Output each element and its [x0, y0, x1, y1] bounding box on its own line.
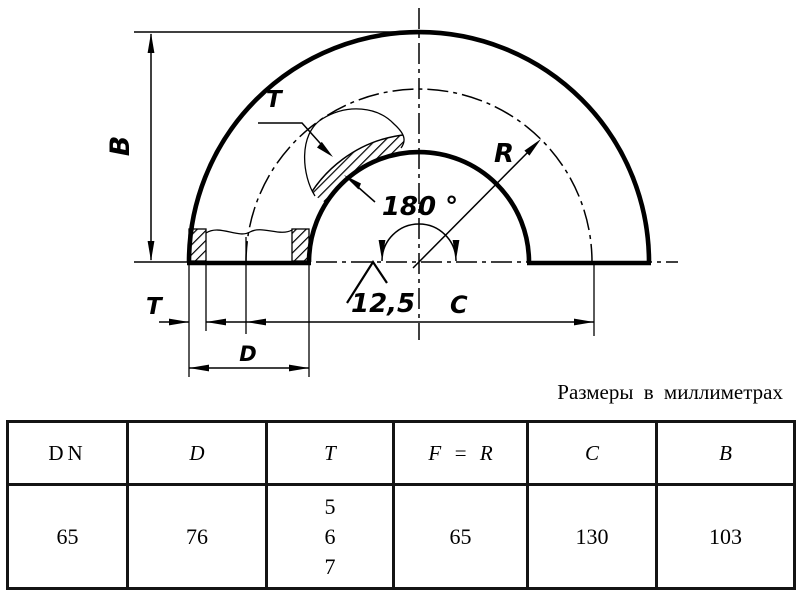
cell-dn: 65 — [8, 485, 128, 589]
return-bend-drawing: T R 180 ° 12,5 T — [0, 0, 800, 415]
c-arrow-right — [574, 319, 594, 326]
col-header-d: D — [128, 422, 267, 485]
col-header-t: T — [267, 422, 394, 485]
drawing-svg: T R 180 ° 12,5 T — [0, 0, 800, 415]
label-angle: 180 ° — [382, 192, 458, 222]
angle-arrow-right — [453, 240, 460, 260]
angle-arrow-left — [379, 240, 386, 260]
cell-t-value-2: 6 — [269, 522, 391, 552]
b-arrow-top — [148, 33, 155, 53]
cell-t: 5 6 7 — [267, 485, 394, 589]
t-leader-arrow-upper — [317, 142, 333, 157]
d-arrow-left — [189, 365, 209, 372]
label-t-dim: T — [146, 294, 164, 320]
col-header-f-r: F = R — [394, 422, 528, 485]
drawing-sheet: T R 180 ° 12,5 T — [0, 0, 800, 600]
label-t-section: T — [266, 87, 284, 113]
dimensions-table: DN D T F = R C B 65 76 5 6 7 65 130 103 — [6, 420, 796, 590]
header-row: DN D T F = R C B — [8, 422, 795, 485]
table-row: 65 76 5 6 7 65 130 103 — [8, 485, 795, 589]
cell-c: 130 — [528, 485, 657, 589]
left-wall-section-hatch — [189, 229, 206, 261]
t-dim-arrow-left — [169, 319, 189, 326]
cell-t-value-3: 7 — [269, 552, 391, 582]
col-header-dn: DN — [8, 422, 128, 485]
cell-f-r: 65 — [394, 485, 528, 589]
b-arrow-bottom — [148, 241, 155, 261]
label-r: R — [494, 139, 514, 169]
cell-d: 76 — [128, 485, 267, 589]
label-roughness: 12,5 — [351, 289, 415, 319]
col-header-c: C — [528, 422, 657, 485]
d-arrow-right — [289, 365, 309, 372]
label-b: B — [105, 136, 136, 157]
cell-b: 103 — [657, 485, 795, 589]
cell-t-value-1: 5 — [269, 492, 391, 522]
c-arrow-left — [246, 319, 266, 326]
units-caption: Размеры в миллиметрах — [557, 380, 783, 405]
label-d: D — [239, 342, 256, 366]
label-c: C — [450, 291, 468, 319]
col-header-b: B — [657, 422, 795, 485]
right-wall-section-hatch — [292, 229, 309, 261]
